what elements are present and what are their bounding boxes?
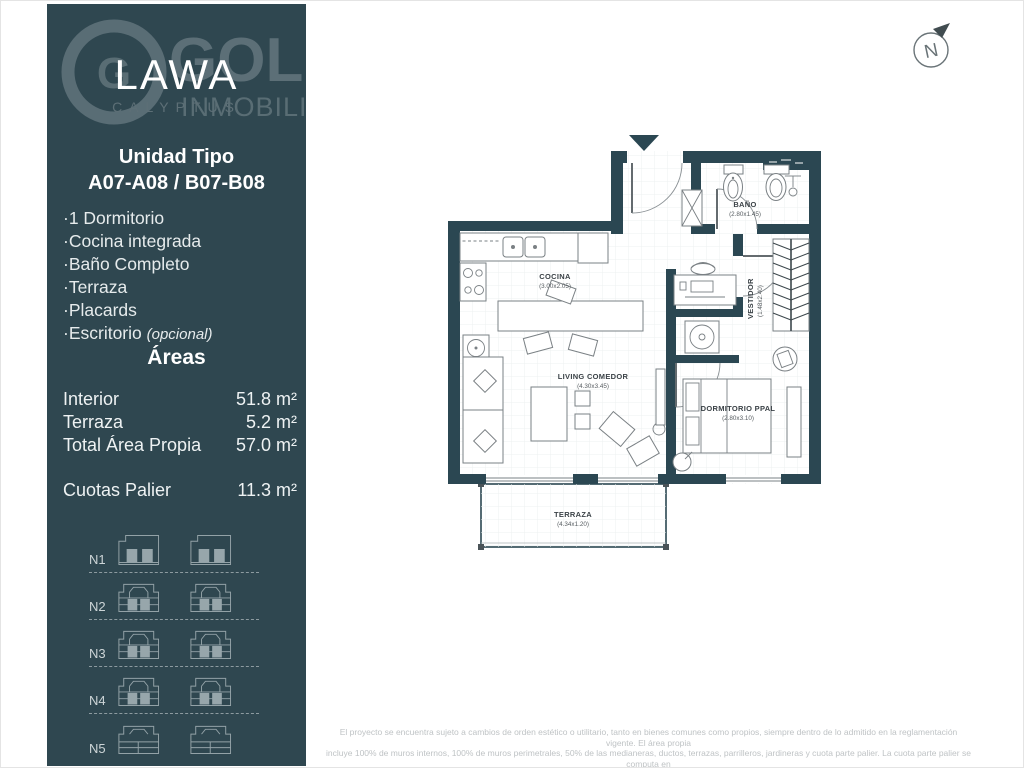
level-row: N5 [89,714,259,761]
coffee-table [531,387,567,441]
bidet-icon [724,165,744,201]
level-row: N1 [89,526,259,573]
north-indicator: N [904,17,966,79]
feature-list: ·1 Dormitorio ·Cocina integrada ·Baño Co… [63,207,213,346]
feature-escritorio-qualifier: (opcional) [147,326,213,343]
feature-escritorio: ·Escritorio [63,323,147,343]
room-dims-dormitorio: (2.80x3.10) [722,415,754,422]
level-row: N4 [89,667,259,714]
room-label-cocina: COCINA [539,272,571,281]
area-row: Terraza 5.2 m² [63,411,297,434]
area-label: Interior [63,388,119,411]
room-dims-cocina: (3.00x2.05) [539,283,571,290]
level-label: N2 [89,599,114,614]
area-label: Total Área Propia [63,434,201,457]
level-thumbnail [116,625,161,661]
area-row: Interior 51.8 m² [63,388,297,411]
wardrobe [773,239,809,331]
brand-logo-calyptus: CALYPTUS [47,100,306,114]
feature-item: ·Cocina integrada [63,230,213,253]
feature-item-optional: ·Escritorio (opcional) [63,322,213,346]
kitchen-island [498,301,643,331]
disclaimer-line: incluye 100% de muros internos, 100% de … [326,748,971,768]
level-label: N1 [89,552,114,567]
area-value: 57.0 m² [236,434,297,457]
room-label-bano: BAÑO [733,200,756,209]
entry-arrow-icon [629,135,659,151]
level-row: N2 [89,573,259,620]
stove-icon [460,263,486,301]
room-label-dormitorio: DORMITORIO PPAL [701,404,776,413]
feature-item: ·1 Dormitorio [63,207,213,230]
unit-title: Unidad Tipo A07-A08 / B07-B08 [47,144,306,196]
laundry-machine-icon [685,321,719,353]
north-arrow-icon [933,23,950,38]
area-value: 51.8 m² [236,388,297,411]
level-diagram: N1 N2 N3 [89,526,259,761]
room-label-vestidor: VESTIDOR [746,278,755,319]
unit-title-line1: Unidad Tipo [47,144,306,170]
windows [486,475,781,483]
room-dims-bano: (2.80x1.45) [729,211,761,218]
area-value: 5.2 m² [246,411,297,434]
level-label: N5 [89,741,114,756]
room-dims-living: (4.30x3.45) [577,383,609,390]
level-thumbnail [188,672,233,708]
level-thumbnail [116,531,161,567]
level-thumbnail [188,720,233,756]
palier-row: Cuotas Palier 11.3 m² [63,480,297,501]
feature-item: ·Baño Completo [63,253,213,276]
room-label-terraza: TERRAZA [554,510,592,519]
level-thumbnail [188,625,233,661]
areas-heading: Áreas [47,346,306,370]
tv-unit [656,369,665,425]
level-label: N3 [89,646,114,661]
flyer-page: G GOLD INMOBILIARIA LAWA CALYPTUS Unidad… [0,0,1024,768]
disclaimer-line: El proyecto se encuentra sujeto a cambio… [326,727,971,748]
north-letter: N [922,40,940,63]
palier-value: 11.3 m² [237,480,297,501]
unit-title-line2: A07-A08 / B07-B08 [47,170,306,196]
level-thumbnail [116,720,161,756]
legal-disclaimer: El proyecto se encuentra sujeto a cambio… [326,727,971,768]
room-dims-terraza: (4.34x1.20) [557,521,589,528]
bedroom-chair [773,347,797,371]
brand-logo-lawa: LAWA [47,54,306,96]
level-thumbnail [116,578,161,614]
room-label-living: LIVING COMEDOR [558,372,629,381]
level-thumbnail [116,672,161,708]
level-thumbnail [188,578,233,614]
washer-icon [682,190,702,226]
palier-label: Cuotas Palier [63,480,171,501]
level-label: N4 [89,693,114,708]
room-dims-vestidor: (1.48x2.40) [757,285,764,317]
area-label: Terraza [63,411,123,434]
level-row: N3 [89,620,259,667]
level-thumbnail [188,531,233,567]
floor-plan: COCINA (3.00x2.05) BAÑO (2.80x1.45) VEST… [433,129,833,594]
sidebar: G GOLD INMOBILIARIA LAWA CALYPTUS Unidad… [47,4,306,766]
feature-item: ·Placards [63,299,213,322]
feature-item: ·Terraza [63,276,213,299]
bedroom-closet [787,387,801,457]
areas-table: Interior 51.8 m² Terraza 5.2 m² Total Ár… [63,388,297,457]
area-row: Total Área Propia 57.0 m² [63,434,297,457]
